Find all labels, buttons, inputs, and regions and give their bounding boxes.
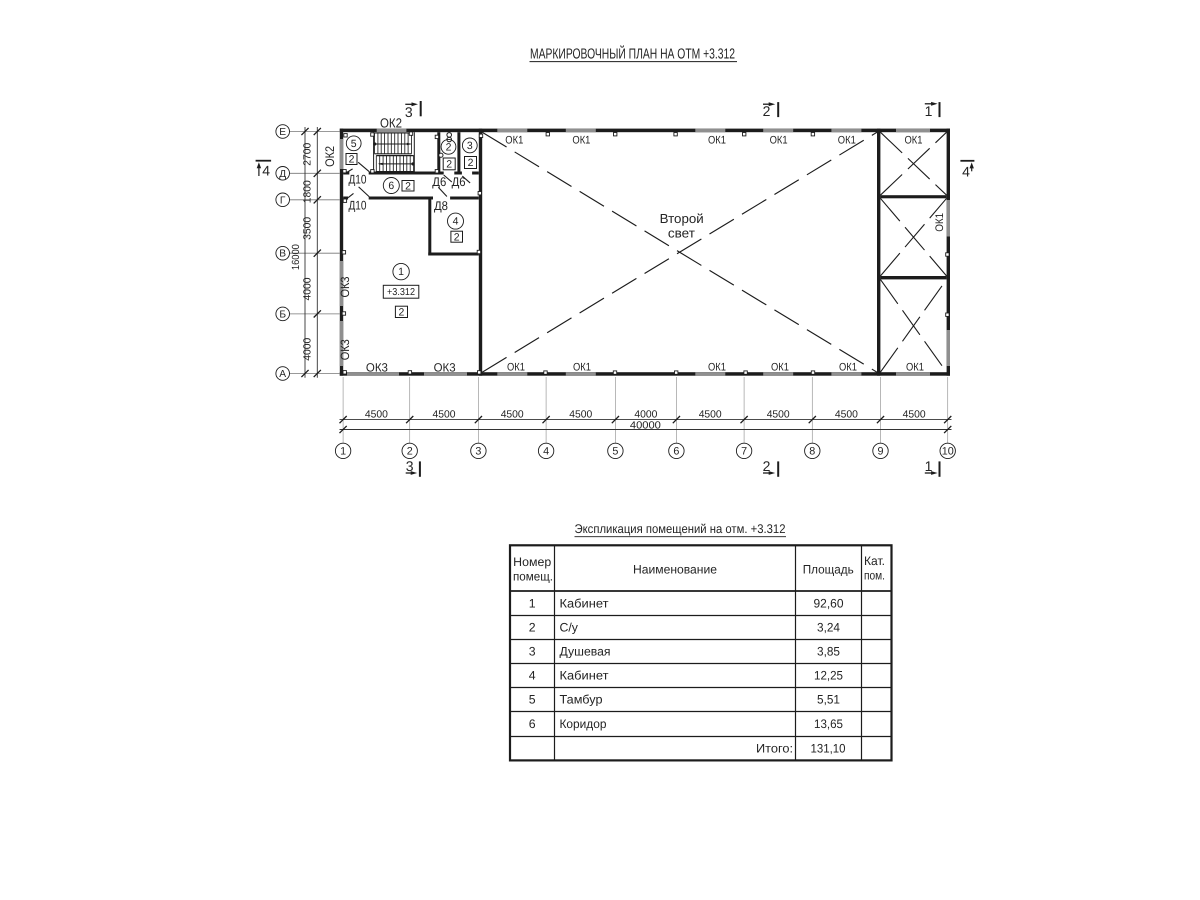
svg-text:2: 2 [398,306,404,318]
svg-text:4500: 4500 [501,410,524,421]
svg-text:13,65: 13,65 [814,717,843,731]
svg-text:МАРКИРОВОЧНЫЙ ПЛАН НА ОТМ +3.3: МАРКИРОВОЧНЫЙ ПЛАН НА ОТМ +3.312 [530,44,735,62]
svg-text:12,25: 12,25 [814,669,843,683]
svg-text:4500: 4500 [767,410,790,421]
svg-text:ОК1: ОК1 [572,134,590,146]
svg-text:6: 6 [673,446,679,458]
svg-text:Д8: Д8 [434,199,448,213]
svg-text:2: 2 [468,157,474,169]
svg-text:3,24: 3,24 [817,621,840,635]
svg-text:ОК1: ОК1 [838,134,856,146]
svg-text:2: 2 [349,154,355,166]
svg-text:2: 2 [763,103,771,119]
svg-text:3: 3 [405,104,413,120]
svg-text:1: 1 [398,266,404,278]
svg-text:1: 1 [925,458,933,474]
svg-text:ОК1: ОК1 [770,134,788,146]
svg-text:4500: 4500 [903,410,926,421]
svg-text:ОК1: ОК1 [771,362,789,374]
svg-text:ОК1: ОК1 [934,213,946,232]
svg-text:Итого:: Итого: [756,742,793,756]
svg-text:ОК3: ОК3 [434,360,456,374]
svg-text:4000: 4000 [303,337,314,360]
svg-text:131,10: 131,10 [811,742,846,756]
svg-text:ОК1: ОК1 [708,134,726,146]
svg-text:2700: 2700 [303,142,314,165]
svg-text:Кабинет: Кабинет [560,669,609,683]
svg-text:Е: Е [279,127,286,138]
svg-text:5: 5 [529,693,536,707]
svg-text:Б: Б [279,309,286,320]
svg-text:ОК2: ОК2 [323,146,337,167]
svg-text:5,51: 5,51 [817,693,840,707]
svg-text:Второй: Второй [660,211,704,226]
svg-text:ОК2: ОК2 [380,115,402,130]
svg-text:Коридор: Коридор [560,717,607,731]
svg-text:ОК1: ОК1 [507,362,525,374]
svg-text:4500: 4500 [699,410,722,421]
svg-text:4: 4 [543,446,549,458]
svg-text:9: 9 [877,446,883,458]
svg-text:2: 2 [405,180,411,192]
svg-text:1: 1 [529,596,536,610]
svg-text:ОК3: ОК3 [366,360,388,374]
svg-text:Кат.: Кат. [864,554,885,568]
svg-text:Экспликация помещений на отм.: Экспликация помещений на отм. +3.312 [575,522,786,536]
svg-text:4500: 4500 [433,410,456,421]
svg-text:ОК1: ОК1 [708,362,726,374]
svg-text:4500: 4500 [569,410,592,421]
svg-text:7: 7 [741,446,747,458]
svg-text:3: 3 [475,446,481,458]
svg-text:Тамбур: Тамбур [560,693,603,707]
svg-text:Д10: Д10 [349,173,367,187]
svg-text:Номер: Номер [513,555,551,569]
svg-text:Д6: Д6 [432,175,446,189]
svg-text:помещ.: помещ. [513,570,553,584]
svg-text:3500: 3500 [303,217,314,240]
svg-text:Д: Д [279,169,286,180]
svg-text:ОК1: ОК1 [906,362,924,374]
svg-text:2: 2 [454,231,460,243]
svg-text:2: 2 [763,458,771,474]
svg-text:Д6: Д6 [452,175,466,189]
svg-text:Г: Г [280,195,286,206]
svg-text:3: 3 [467,140,473,152]
svg-text:3: 3 [406,458,414,474]
svg-text:4: 4 [529,669,536,683]
svg-text:1800: 1800 [303,180,314,203]
svg-text:40000: 40000 [630,420,661,431]
svg-text:92,60: 92,60 [814,596,844,610]
svg-text:6: 6 [388,180,394,192]
svg-text:Площадь: Площадь [803,563,854,577]
svg-text:В: В [279,249,286,260]
svg-text:Кабинет: Кабинет [560,596,609,610]
svg-text:А: А [279,369,286,380]
svg-text:5: 5 [612,446,618,458]
svg-text:8: 8 [809,446,815,458]
svg-text:пом.: пом. [864,569,885,583]
svg-text:5: 5 [351,138,357,150]
svg-text:4: 4 [262,162,270,178]
svg-text:16000: 16000 [291,244,302,270]
svg-text:2: 2 [529,621,536,635]
svg-text:Д10: Д10 [349,199,367,213]
svg-text:Душевая: Душевая [560,645,611,659]
svg-text:4500: 4500 [365,410,388,421]
svg-text:4: 4 [962,164,970,180]
svg-text:2: 2 [407,446,413,458]
svg-text:ОК3: ОК3 [338,339,352,360]
svg-text:4: 4 [453,216,459,228]
svg-text:4000: 4000 [303,277,314,300]
svg-text:1: 1 [925,103,933,119]
svg-text:Наименование: Наименование [633,563,717,577]
svg-text:ОК3: ОК3 [338,276,352,297]
svg-text:6: 6 [529,717,536,731]
svg-text:ОК1: ОК1 [505,134,523,146]
svg-text:1: 1 [340,446,346,458]
svg-text:4000: 4000 [634,410,657,421]
svg-text:С/у: С/у [560,621,579,635]
svg-text:3: 3 [529,645,536,659]
svg-text:ОК1: ОК1 [905,134,923,146]
svg-text:свет: свет [668,226,695,241]
svg-text:2: 2 [446,141,452,153]
svg-text:+3.312: +3.312 [387,287,415,298]
svg-text:ОК1: ОК1 [573,362,591,374]
svg-text:10: 10 [942,446,954,458]
svg-text:4500: 4500 [835,410,858,421]
svg-text:2: 2 [446,159,452,171]
svg-text:3,85: 3,85 [817,645,840,659]
svg-text:ОК1: ОК1 [839,362,857,374]
